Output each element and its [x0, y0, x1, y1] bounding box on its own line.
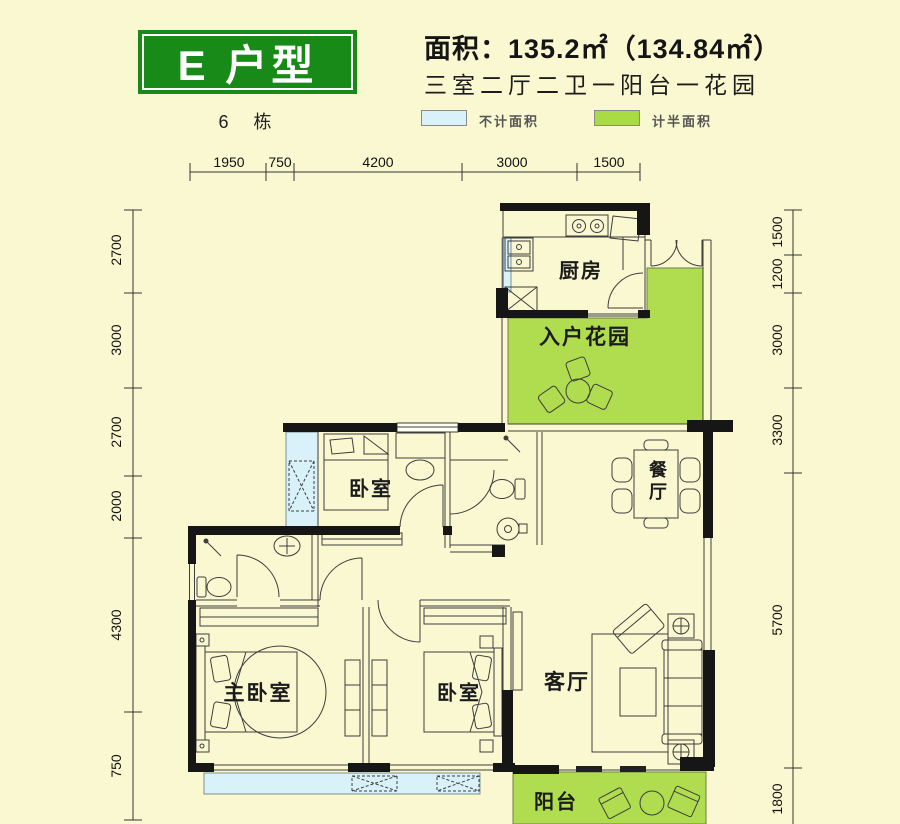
floorplan-page: E 户型 6 栋 面积：135.2㎡（134.84㎡） 三室二厅二卫一阳台一花园… — [0, 0, 900, 824]
unit-title: E 户型 — [142, 34, 353, 90]
dim-top-1: 750 — [268, 154, 291, 170]
bathroom-middle — [450, 436, 527, 552]
dim-right-1: 1200 — [769, 258, 785, 289]
layout-text: 三室二厅二卫一阳台一花园 — [424, 66, 760, 100]
dim-left-2: 2700 — [108, 416, 124, 447]
unit-title-box: E 户型 — [138, 30, 357, 94]
legend-label-half-area: 计半面积 — [652, 111, 712, 130]
room-label-living: 客厅 — [544, 666, 590, 696]
dim-top-2: 4200 — [362, 154, 393, 170]
bedroom-top-door — [400, 485, 443, 527]
dim-top-4: 1500 — [593, 154, 624, 170]
dim-right-2: 3000 — [769, 324, 785, 355]
dim-right-4: 5700 — [769, 604, 785, 635]
dining-set — [537, 432, 711, 650]
basin-mid — [497, 518, 519, 540]
room-label-entry-garden: 入户花园 — [539, 321, 631, 351]
desk — [396, 433, 445, 458]
room-label-kitchen: 厨房 — [559, 255, 603, 284]
half-area-zones — [508, 268, 706, 824]
building-label: 6 栋 — [160, 108, 340, 134]
dim-left-1: 3000 — [108, 324, 124, 355]
dim-right-3: 3300 — [769, 414, 785, 445]
toilet-mid — [515, 479, 525, 499]
legend-swatch-half-area — [594, 110, 640, 126]
bathroom-left — [190, 527, 321, 607]
room-label-bedroom-top: 卧室 — [349, 473, 393, 502]
room-label-master-bedroom: 主卧室 — [224, 677, 293, 707]
legend-label-no-area: 不计面积 — [479, 111, 539, 130]
dim-right-5: 1800 — [769, 783, 785, 814]
area-text: 面积：135.2㎡（134.84㎡） — [424, 27, 781, 66]
room-label-dining: 餐厅 — [643, 460, 669, 504]
dim-left-4: 4300 — [108, 609, 124, 640]
thin-lines — [190, 210, 712, 819]
dim-right-0: 1500 — [769, 216, 785, 247]
toilet-left — [197, 577, 206, 597]
armchair — [612, 603, 665, 654]
dim-top-3: 3000 — [496, 154, 527, 170]
dimension-lines — [124, 163, 802, 824]
dim-top-0: 1950 — [213, 154, 244, 170]
room-label-bedroom-second: 卧室 — [437, 677, 481, 706]
bay-window-zones — [204, 238, 511, 794]
legend-swatch-no-area — [421, 110, 467, 126]
sliding-door-panels — [576, 766, 646, 772]
legend: 不计面积 计半面积 — [421, 108, 751, 128]
coffee-table — [620, 668, 656, 716]
dim-left-0: 2700 — [108, 234, 124, 265]
dim-left-3: 2000 — [108, 490, 124, 521]
garden-window — [508, 424, 687, 431]
living-room — [513, 603, 702, 764]
sofa — [664, 650, 702, 734]
living-rug — [592, 634, 668, 752]
flue — [505, 287, 537, 312]
dim-left-5: 750 — [108, 754, 124, 777]
master-bedroom-room — [196, 558, 369, 763]
room-label-balcony: 阳台 — [534, 786, 578, 815]
tv-cabinet — [513, 612, 522, 690]
